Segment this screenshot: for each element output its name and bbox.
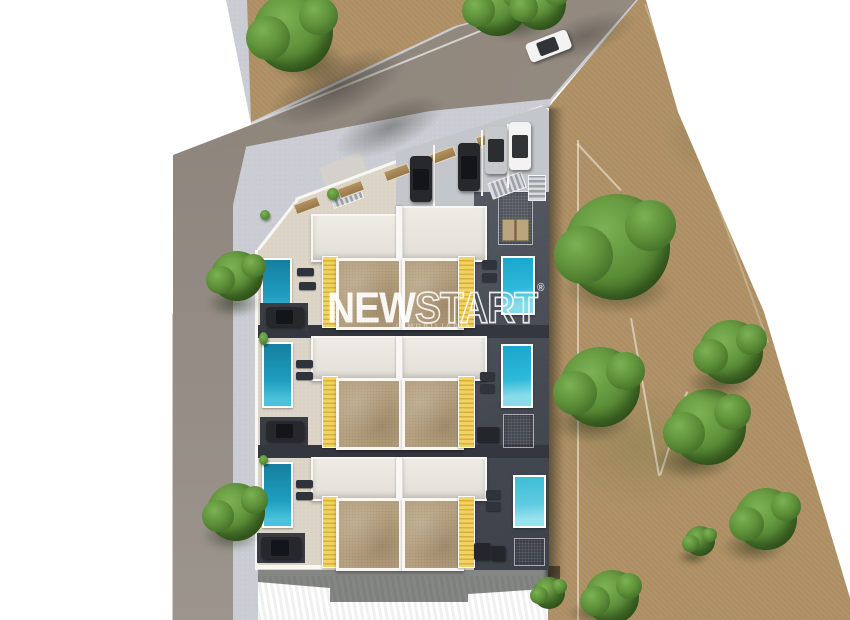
tree [533, 577, 565, 609]
townhouse-roof [401, 206, 487, 262]
tree [685, 526, 715, 556]
parked-car-white [509, 122, 531, 170]
sun-lounger [296, 360, 313, 368]
sun-lounger [486, 490, 501, 499]
car-windshield [413, 169, 429, 190]
garden-patch [514, 538, 545, 566]
tree [585, 570, 639, 620]
watermark-subtitle: INMOBILIARIA [396, 323, 472, 330]
car-windshield [271, 540, 289, 556]
car-windshield [536, 36, 559, 56]
parking-divider-wall [433, 145, 435, 207]
garden-patch [503, 414, 534, 448]
tree [207, 483, 265, 541]
parking-divider-wall [481, 130, 483, 196]
shrub [259, 332, 268, 345]
shrub [260, 210, 270, 220]
parked-car-silver [485, 126, 507, 174]
townhouse-roof [401, 457, 487, 501]
sun-lounger [297, 268, 314, 276]
tree [699, 320, 763, 384]
parked-car-dark [458, 143, 480, 191]
parked-car-dark [410, 156, 432, 202]
tree [735, 488, 797, 550]
sun-lounger [502, 219, 515, 241]
fence-line-diagonal-1 [577, 143, 622, 191]
townhouse-roof [311, 457, 401, 501]
parked-car-dark [266, 421, 304, 441]
solarium-terrace [336, 378, 402, 450]
swimming-pool [501, 344, 533, 408]
solarium-terrace [402, 498, 464, 571]
shrub [327, 188, 339, 200]
swimming-pool [513, 475, 546, 528]
tree [560, 347, 640, 427]
sun-lounger [516, 219, 529, 241]
sun-lounger [296, 492, 313, 500]
sun-lounger [480, 372, 495, 381]
sun-lounger [486, 502, 501, 511]
sun-lounger [299, 282, 316, 290]
outdoor-sofa [477, 427, 499, 443]
sun-lounger [296, 480, 313, 488]
car-windshield [512, 135, 528, 157]
sun-lounger [296, 372, 313, 380]
solarium-terrace [336, 498, 402, 571]
swimming-pool [262, 342, 293, 408]
tree [564, 194, 670, 300]
car-windshield [461, 156, 477, 178]
outdoor-sofa [491, 546, 505, 561]
townhouse-roof [311, 214, 401, 262]
parked-car-dark [261, 537, 301, 559]
sun-lounger [482, 273, 497, 282]
aerial-site-render: NEWSTART® INMOBILIARIA [0, 0, 850, 620]
solarium-terrace [402, 378, 464, 450]
car-windshield [276, 424, 293, 438]
townhouse-roof [311, 336, 401, 381]
sun-lounger [480, 384, 495, 393]
car-windshield [276, 310, 293, 324]
entrance-stairs-east [528, 175, 546, 201]
shrub [259, 455, 268, 465]
parked-car-dark [266, 307, 304, 327]
sun-lounger [482, 260, 497, 269]
storage-bin [474, 543, 490, 560]
pergola-awning [458, 376, 475, 448]
registered-trademark-icon: ® [537, 282, 544, 294]
pergola-awning [458, 496, 475, 568]
tree [211, 251, 263, 301]
tree [670, 389, 746, 465]
townhouse-roof [401, 336, 487, 381]
car-windshield [488, 139, 504, 161]
